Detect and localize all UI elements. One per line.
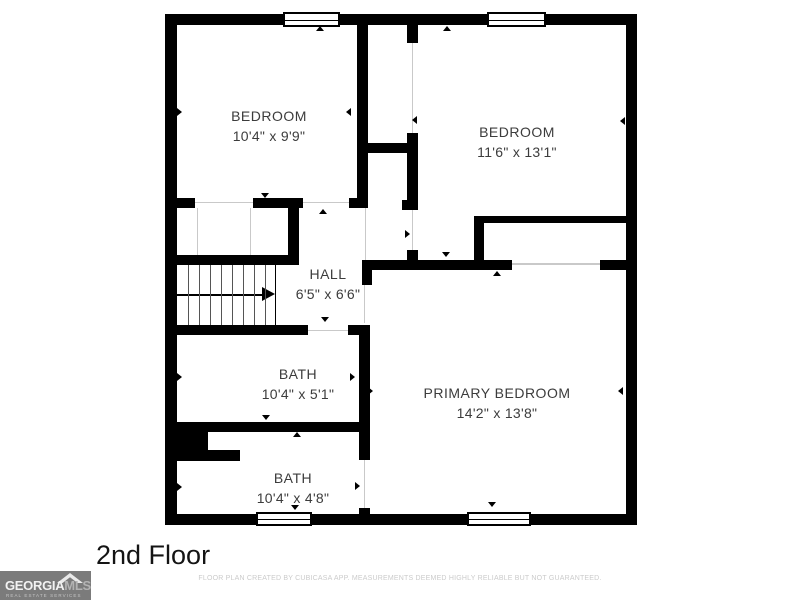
room-label-bath-2: BATH 10'4" x 4'8" — [257, 470, 330, 506]
wall-segment — [349, 198, 368, 208]
wall-segment — [600, 260, 637, 270]
wall-segment — [165, 198, 195, 208]
opening-marker-icon — [350, 373, 355, 381]
wall-segment — [359, 508, 370, 525]
stair-tread — [199, 265, 200, 325]
stairs-direction-arrow-icon — [262, 287, 275, 301]
stair-tread — [265, 265, 266, 325]
room-name: BEDROOM — [231, 108, 307, 124]
opening-marker-icon — [412, 116, 417, 124]
room-name: BATH — [262, 366, 335, 382]
wall-segment — [407, 250, 418, 260]
opening-marker-icon — [316, 26, 324, 31]
wall-segment — [474, 217, 484, 260]
window — [467, 512, 531, 526]
room-label-bedroom-2: BEDROOM 11'6" x 13'1" — [477, 124, 557, 160]
opening-marker-icon — [368, 387, 373, 395]
room-dimensions: 10'4" x 5'1" — [262, 386, 335, 402]
opening-marker-icon — [355, 482, 360, 490]
room-dimensions: 14'2" x 13'8" — [423, 405, 570, 421]
window — [283, 12, 340, 27]
room-name: PRIMARY BEDROOM — [423, 385, 570, 401]
stair-tread — [254, 265, 255, 325]
opening-marker-icon — [319, 209, 327, 214]
wall-segment — [362, 270, 372, 285]
opening-marker-icon — [442, 252, 450, 257]
door-opening-line — [364, 460, 365, 508]
room-label-bedroom-1: BEDROOM 10'4" x 9'9" — [231, 108, 307, 144]
opening-marker-icon — [620, 117, 625, 125]
solid-void — [208, 450, 240, 461]
door-opening-line — [195, 202, 253, 203]
floor-title: 2nd Floor — [96, 540, 210, 571]
stair-tread — [188, 265, 189, 325]
wall-segment — [165, 14, 637, 25]
room-dimensions: 6'5" x 6'6" — [296, 286, 361, 302]
stair-tread — [210, 265, 211, 325]
opening-marker-icon — [177, 483, 182, 491]
door-opening-line — [364, 285, 365, 323]
door-opening-line — [197, 208, 198, 255]
opening-marker-icon — [405, 230, 410, 238]
opening-marker-icon — [262, 415, 270, 420]
wall-segment — [165, 14, 177, 525]
room-label-primary-bedroom: PRIMARY BEDROOM 14'2" x 13'8" — [423, 385, 570, 421]
wall-segment — [474, 216, 637, 223]
door-opening-line — [250, 208, 251, 255]
logo-tagline: REAL ESTATE SERVICES — [6, 593, 82, 598]
opening-marker-icon — [293, 432, 301, 437]
window — [487, 12, 546, 27]
room-name: HALL — [296, 266, 361, 282]
opening-marker-icon — [321, 317, 329, 322]
opening-marker-icon — [493, 271, 501, 276]
room-name: BEDROOM — [477, 124, 557, 140]
window-pane-line — [285, 20, 338, 21]
opening-marker-icon — [346, 108, 351, 116]
wall-segment — [165, 325, 308, 335]
door-opening-line — [512, 263, 600, 265]
door-opening-line — [303, 202, 349, 203]
opening-marker-icon — [291, 505, 299, 510]
stair-tread — [221, 265, 222, 325]
wall-segment — [407, 25, 418, 43]
opening-marker-icon — [177, 108, 182, 116]
stair-tread — [243, 265, 244, 325]
door-opening-line — [308, 330, 348, 331]
window — [256, 512, 312, 526]
room-name: BATH — [257, 470, 330, 486]
disclaimer-text: FLOOR PLAN CREATED BY CUBICASA APP. MEAS… — [0, 575, 800, 582]
opening-marker-icon — [488, 502, 496, 507]
opening-marker-icon — [177, 373, 182, 381]
window-pane-line — [489, 20, 544, 21]
window-pane-line — [258, 519, 310, 520]
door-opening-line — [412, 210, 413, 250]
room-dimensions: 10'4" x 4'8" — [257, 490, 330, 506]
room-dimensions: 11'6" x 13'1" — [477, 144, 557, 160]
wall-segment — [402, 200, 418, 210]
opening-marker-icon — [618, 387, 623, 395]
wall-segment — [165, 514, 637, 525]
floor-plan-page: BEDROOM 10'4" x 9'9" BEDROOM 11'6" x 13'… — [0, 0, 800, 600]
opening-marker-icon — [261, 193, 269, 198]
wall-segment — [357, 25, 368, 198]
window-pane-line — [469, 519, 529, 520]
room-label-bath-1: BATH 10'4" x 5'1" — [262, 366, 335, 402]
wall-segment — [362, 260, 512, 270]
room-dimensions: 10'4" x 9'9" — [231, 128, 307, 144]
wall-segment — [357, 143, 418, 153]
staircase — [177, 265, 276, 325]
solid-void — [177, 430, 208, 461]
room-label-hall: HALL 6'5" x 6'6" — [296, 266, 361, 302]
door-opening-line — [365, 208, 366, 260]
wall-segment — [165, 255, 299, 265]
stair-tread — [232, 265, 233, 325]
opening-marker-icon — [443, 26, 451, 31]
